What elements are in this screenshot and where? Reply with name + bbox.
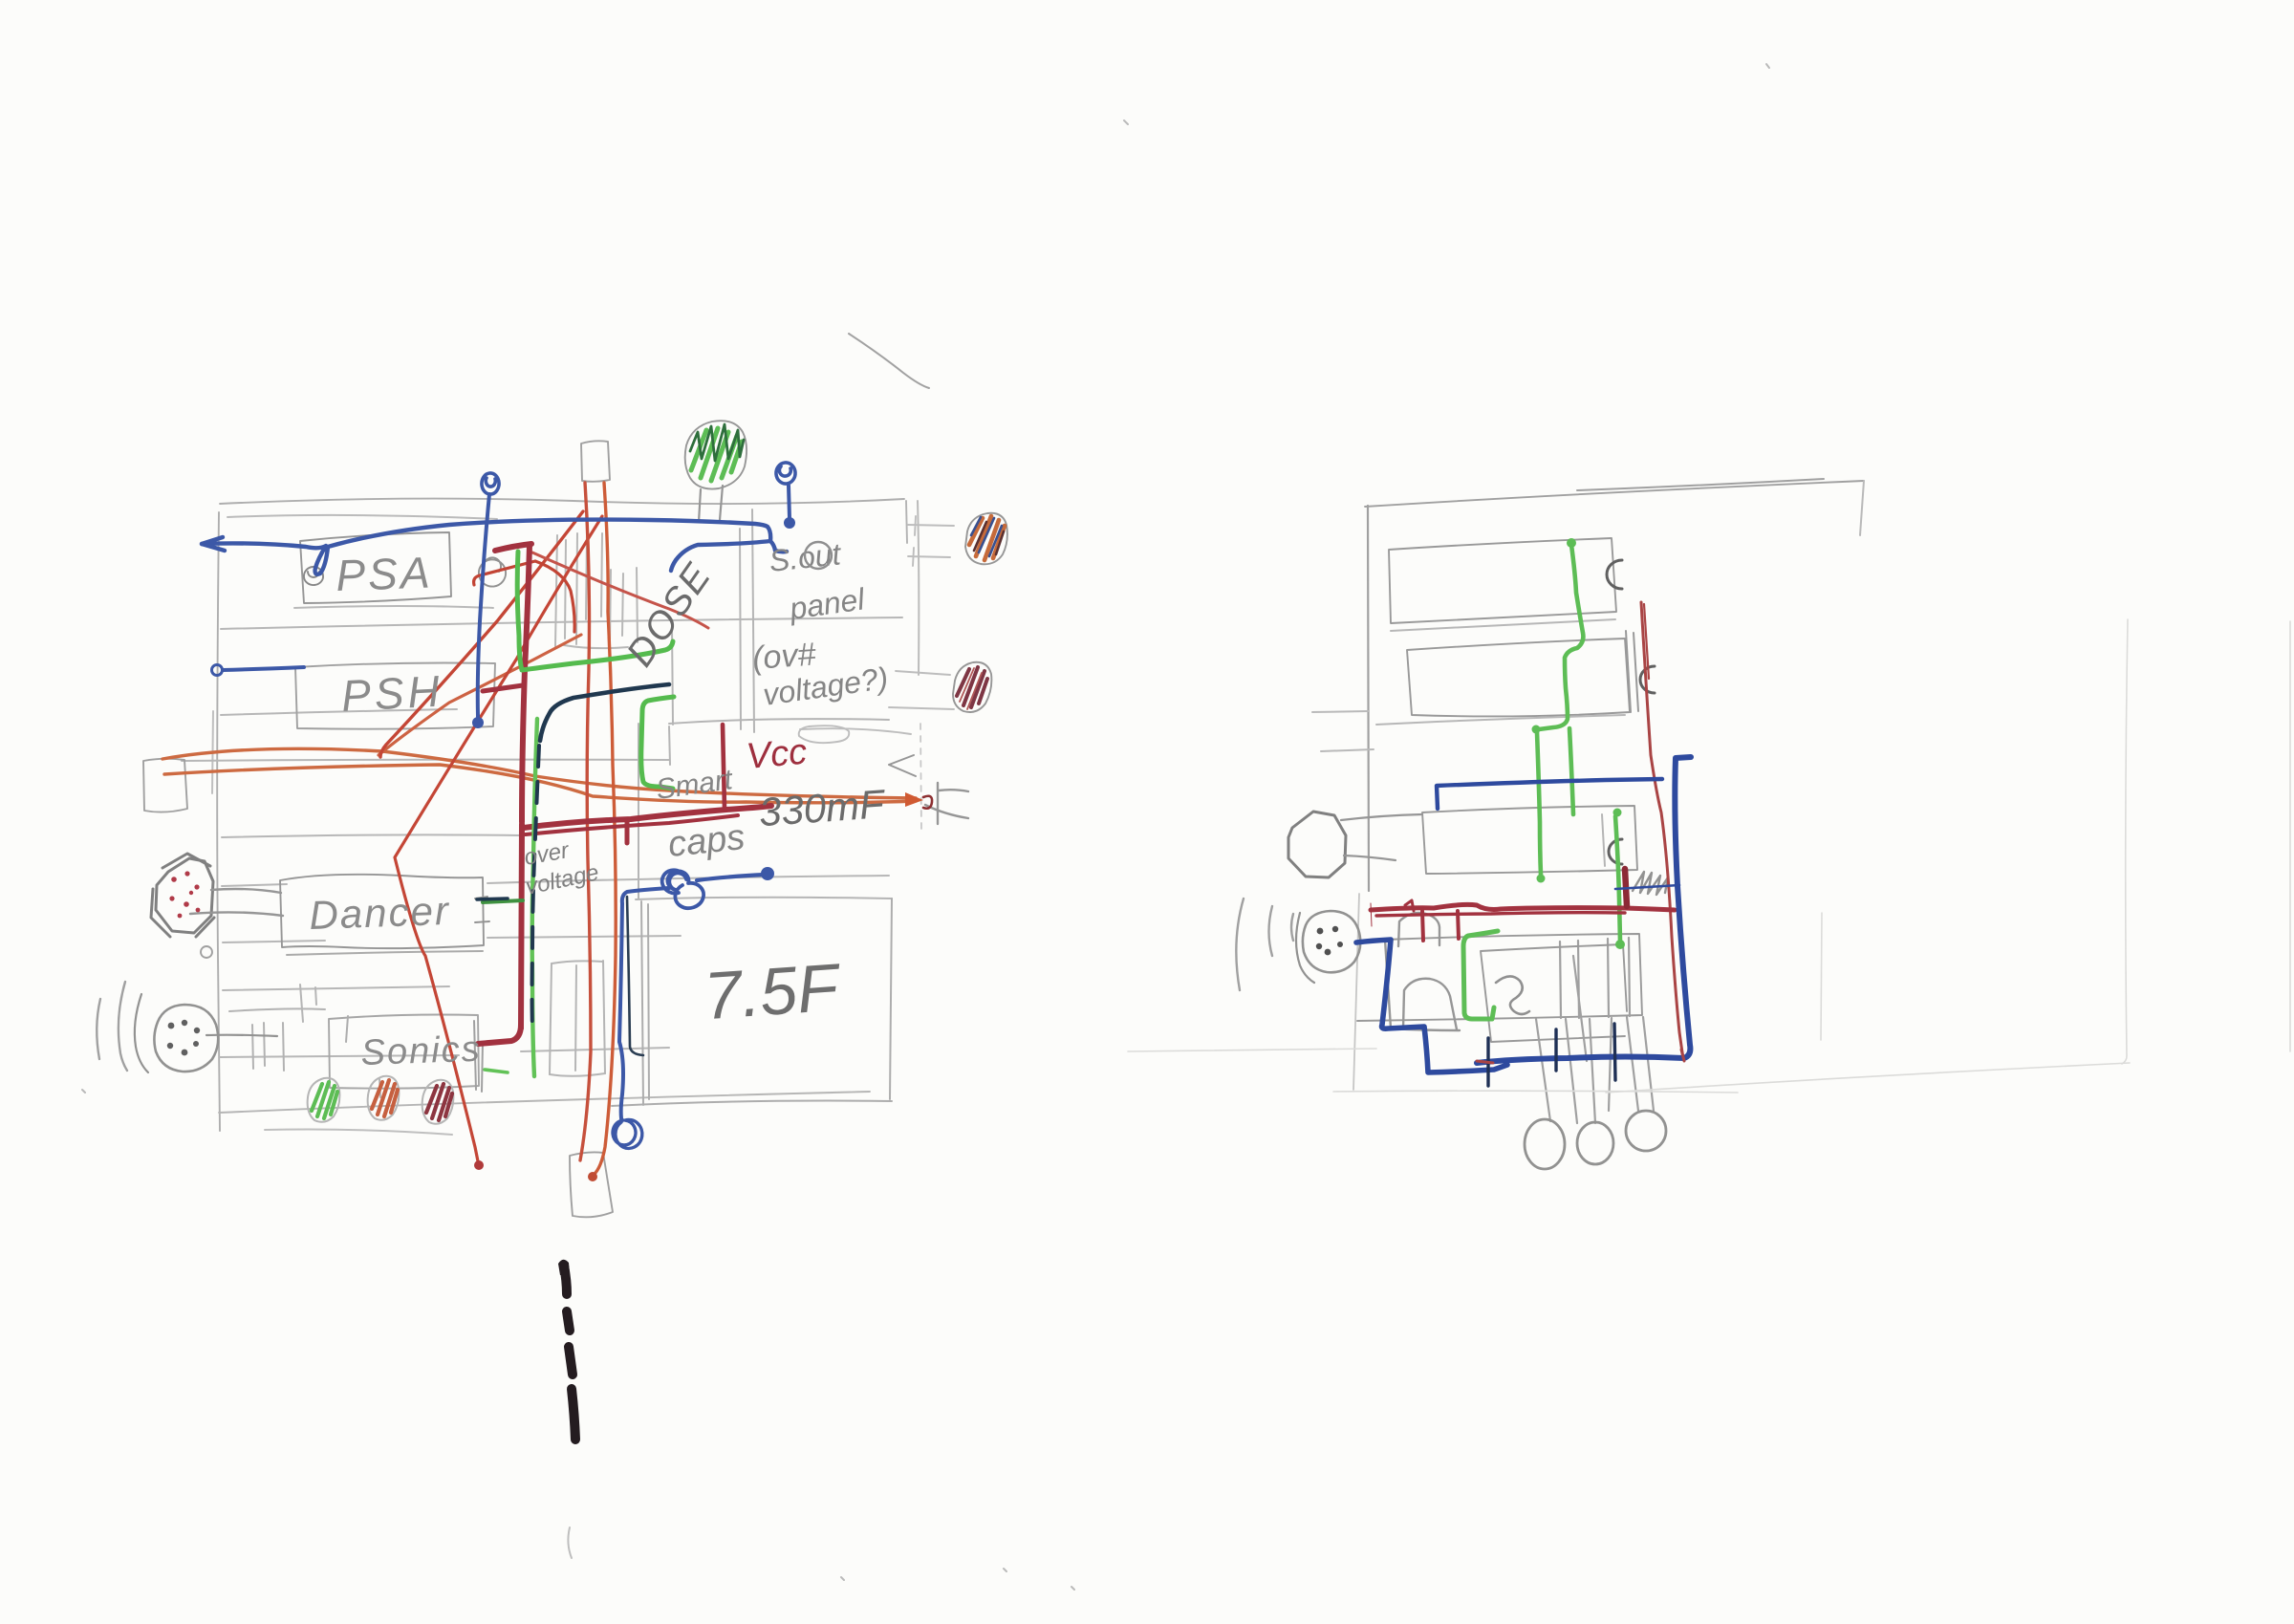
svg-text:Sonics: Sonics (360, 1029, 482, 1073)
svg-text:caps: caps (666, 817, 747, 865)
svg-text:PSA: PSA (335, 547, 434, 599)
svg-text:Dancer: Dancer (309, 888, 451, 938)
svg-text:PSH: PSH (340, 665, 444, 721)
svg-text:330mF: 330mF (757, 781, 887, 834)
svg-text:Vcc: Vcc (745, 732, 809, 777)
svg-text:7.5F: 7.5F (702, 949, 844, 1033)
